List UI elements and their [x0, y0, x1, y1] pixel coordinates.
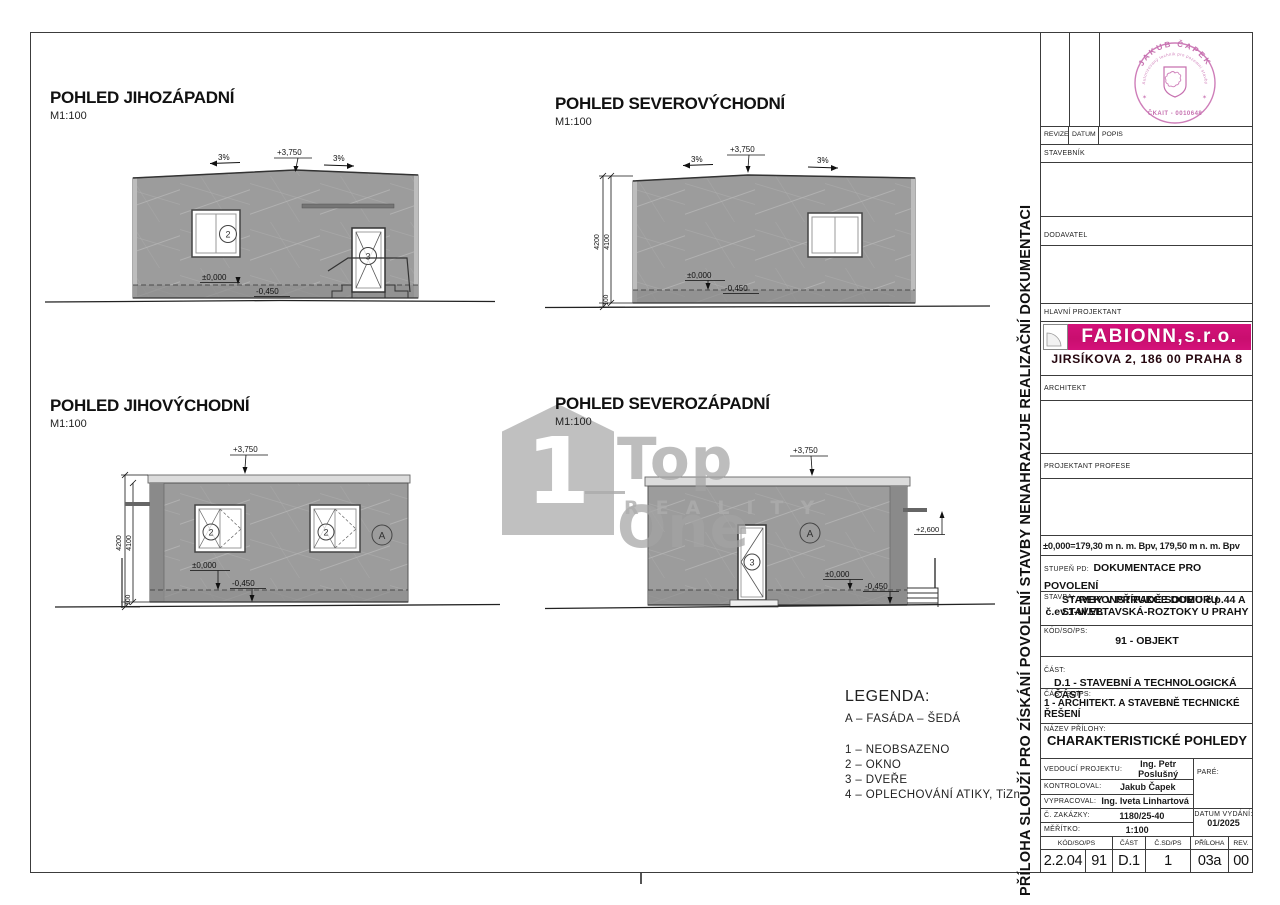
- legend-title: LEGENDA:: [845, 688, 1020, 706]
- svg-text:+3,750: +3,750: [233, 445, 258, 454]
- bottom-table-values: 2.2.04 91 D.1 1 03a 00: [1041, 850, 1253, 872]
- stavebnik-label: STAVEBNÍK: [1044, 150, 1085, 157]
- stamp-number: ČKAIT - 0010648: [1148, 110, 1203, 117]
- svg-text:3%: 3%: [817, 156, 829, 165]
- vedouci-row: VEDOUCÍ PROJEKTU: Ing. Petr Poslušný: [1041, 759, 1193, 780]
- fabionn-logo: FABIONN,s.r.o.: [1043, 324, 1251, 350]
- stamp-star-right: ✶: [1202, 94, 1207, 101]
- svg-text:3: 3: [365, 252, 370, 262]
- fabionn-logo-icon: [1043, 324, 1068, 350]
- stamp-shield: [1164, 67, 1186, 97]
- ground-line: [45, 301, 495, 303]
- stavba-label: STAVBA:: [1044, 594, 1075, 601]
- svg-text:A: A: [379, 531, 386, 542]
- stavebnik-box: [1041, 163, 1253, 217]
- right-steps: [907, 558, 938, 607]
- elevation-northeast: 4200 4100 100 +3,750 3% 3% ±0,000 -0,450: [545, 130, 1000, 325]
- bt-v-kod: 2.2.04: [1041, 850, 1086, 872]
- projektant-profese-section: PROJEKTANT PROFESE: [1041, 454, 1253, 479]
- svg-text:A: A: [807, 529, 814, 540]
- roof-annotations: +3,750 3% 3%: [683, 145, 838, 173]
- stavba-line1: REKONSTRUKCE DOMU č.p.44 A: [1044, 594, 1250, 606]
- kod-so-ps-value: 91 - OBJEKT: [1044, 635, 1250, 647]
- fabionn-name: FABIONN,s.r.o.: [1081, 326, 1237, 348]
- zakazka-value: 1180/25-40: [1094, 811, 1190, 821]
- meritko-row: MĚŘÍTKO: 1:100: [1041, 823, 1193, 836]
- zakazka-label: Č. ZAKÁZKY:: [1044, 812, 1090, 819]
- cast-so-ps-label: ČÁST SO/PS:: [1044, 691, 1250, 698]
- svg-text:+3,750: +3,750: [277, 148, 302, 157]
- svg-text:±0,000: ±0,000: [825, 570, 850, 579]
- legend-item: 2 – OKNO: [845, 758, 1020, 773]
- view-scale-se: M1:100: [50, 418, 87, 430]
- cast-label: ČÁST:: [1044, 667, 1065, 674]
- fabionn-banner: FABIONN,s.r.o.: [1068, 324, 1251, 350]
- view-scale-nw: M1:100: [555, 416, 592, 428]
- revize-header: REVIZE: [1041, 127, 1069, 144]
- attic-flashing: [148, 475, 410, 483]
- bottom-table-header: KÓD/SO/PS ČÁST Č.SD/PS PŘÍLOHA REV.: [1041, 837, 1253, 850]
- view-title-sw: POHLED JIHOZÁPADNÍ: [50, 88, 234, 108]
- architekt-section: ARCHITEKT: [1041, 376, 1253, 401]
- popis-header: POPIS: [1099, 127, 1253, 144]
- bt-v-cast: D.1: [1113, 850, 1146, 872]
- bt-h-cast: ČÁST: [1113, 837, 1146, 849]
- svg-text:2: 2: [208, 528, 213, 538]
- dodavatel-section: DODAVATEL: [1041, 217, 1253, 246]
- legend-item-facade: A – FASÁDA – ŠEDÁ: [845, 712, 1020, 727]
- svg-text:4100: 4100: [126, 535, 133, 551]
- vedouci-label: VEDOUCÍ PROJEKTU:: [1044, 766, 1122, 773]
- pare-label: PARÉ:: [1197, 769, 1219, 776]
- elevation-southeast: 2 2 A 4200 4100 100: [40, 440, 540, 625]
- meritko-label: MĚŘÍTKO:: [1044, 826, 1080, 833]
- window: [808, 213, 862, 257]
- vypracoval-value: Ing. Iveta Linhartová: [1100, 796, 1190, 806]
- legend-item: 4 – OPLECHOVÁNÍ ATIKY, TiZn: [845, 788, 1020, 803]
- svg-text:+2,600: +2,600: [916, 525, 939, 534]
- authorization-stamp: JAKUB ČAPEK Autorizovaný technik pro poz…: [1128, 39, 1220, 127]
- view-title-nw: POHLED SEVEROZÁPADNÍ: [555, 394, 770, 414]
- vedouci-value: Ing. Petr Poslušný: [1126, 759, 1190, 779]
- bt-h-priloha: PŘÍLOHA: [1191, 837, 1229, 849]
- kontroloval-row: KONTROLOVAL: Jakub Čapek: [1041, 780, 1193, 795]
- bt-v-rev: 00: [1229, 850, 1253, 872]
- elevation-northwest: 3 A +3,750 +2,600 ±0,000 -0,450: [545, 440, 1000, 655]
- svg-text:4100: 4100: [604, 234, 611, 250]
- svg-text:-0,450: -0,450: [256, 287, 279, 296]
- view-title-ne: POHLED SEVEROVÝCHODNÍ: [555, 94, 785, 114]
- elevation-southwest: 2 3 ±0,000 -0,450 +3,750: [40, 130, 540, 320]
- bt-v-so: 91: [1086, 850, 1113, 872]
- stavba-section: STAVBA: REKONSTRUKCE DOMU č.p.44 A č.ev.…: [1041, 592, 1253, 626]
- kod-so-ps-section: KÓD/SO/PS: 91 - OBJEKT: [1041, 626, 1253, 657]
- dodavatel-box: [1041, 246, 1253, 304]
- stavba-line2: č.ev.1-ul.VLTAVSKÁ-ROZTOKY U PRAHY: [1044, 606, 1250, 618]
- fabionn-address: JIRSÍKOVA 2, 186 00 PRAHA 8: [1041, 352, 1253, 366]
- svg-text:+3,750: +3,750: [730, 145, 755, 154]
- svg-text:-0,450: -0,450: [865, 582, 888, 591]
- kod-so-ps-label: KÓD/SO/PS:: [1044, 628, 1250, 635]
- svg-text:-0,450: -0,450: [725, 284, 748, 293]
- bt-h-rev: REV.: [1229, 837, 1253, 849]
- window-right: 2: [310, 505, 360, 552]
- title-block: JAKUB ČAPEK Autorizovaný technik pro poz…: [1040, 32, 1253, 873]
- svg-text:100: 100: [603, 294, 610, 305]
- svg-text:2: 2: [323, 528, 328, 538]
- zakazka-block: Č. ZAKÁZKY: 1180/25-40 MĚŘÍTKO: 1:100 DA…: [1041, 809, 1253, 837]
- architekt-label: ARCHITEKT: [1044, 385, 1086, 392]
- svg-text:±0,000: ±0,000: [202, 273, 227, 282]
- dodavatel-label: DODAVATEL: [1044, 232, 1088, 239]
- roof-annotations: +3,750: [230, 445, 268, 474]
- company-logo-box: FABIONN,s.r.o. JIRSÍKOVA 2, 186 00 PRAHA…: [1041, 322, 1253, 376]
- hlavni-projektant-section: HLAVNÍ PROJEKTANT: [1041, 304, 1253, 322]
- legend: LEGENDA: A – FASÁDA – ŠEDÁ 1 – NEOBSAZEN…: [845, 688, 1020, 803]
- stupen-pd-section: STUPEŇ PD: DOKUMENTACE PRO POVOLENÍ STAV…: [1041, 556, 1253, 592]
- svg-text:-0,450: -0,450: [232, 579, 255, 588]
- svg-text:3%: 3%: [218, 153, 230, 162]
- zakazka-row: Č. ZAKÁZKY: 1180/25-40: [1041, 809, 1193, 823]
- bt-v-priloha: 03a: [1191, 850, 1229, 872]
- stamp-star-left: ✶: [1142, 94, 1147, 101]
- hlavni-projektant-label: HLAVNÍ PROJEKTANT: [1044, 309, 1122, 316]
- legend-item: 1 – NEOBSAZENO: [845, 743, 1020, 758]
- roof-annotations: +3,750 3% 3%: [210, 148, 354, 172]
- datum-vydani-value: 01/2025: [1194, 818, 1253, 828]
- kontroloval-value: Jakub Čapek: [1106, 782, 1190, 792]
- projektant-profese-box: [1041, 479, 1253, 536]
- people-block: VEDOUCÍ PROJEKTU: Ing. Petr Poslušný KON…: [1041, 759, 1253, 809]
- datum-vydani-cell: DATUM VYDÁNÍ: 01/2025: [1193, 809, 1253, 836]
- svg-text:2: 2: [225, 230, 230, 240]
- projektant-profese-label: PROJEKTANT PROFESE: [1044, 463, 1130, 470]
- vypracoval-label: VYPRACOVAL:: [1044, 798, 1096, 805]
- vypracoval-row: VYPRACOVAL: Ing. Iveta Linhartová: [1041, 795, 1193, 809]
- drawing-sheet: POHLED JIHOZÁPADNÍ M1:100 POHLED SEVEROV…: [0, 0, 1280, 905]
- cast-so-ps-value: 1 - ARCHITEKT. A STAVEBNĚ TECHNICKÉ ŘEŠE…: [1044, 698, 1250, 720]
- dimension-lines: 4200 4100 100: [116, 472, 150, 610]
- attic-flashing-strip: [302, 204, 394, 208]
- svg-text:±0,000: ±0,000: [687, 271, 712, 280]
- stupen-pd-label: STUPEŇ PD:: [1044, 566, 1089, 573]
- ground-line: [545, 306, 990, 308]
- elevation-datum-note: ±0,000=179,30 m n. m. Bpv, 179,50 m n. m…: [1043, 541, 1240, 551]
- dimension-lines: 4200 4100 100: [594, 173, 633, 310]
- revision-area: JAKUB ČAPEK Autorizovaný technik pro poz…: [1041, 32, 1253, 127]
- pare-cell: PARÉ:: [1193, 759, 1253, 808]
- datum-vydani-label: DATUM VYDÁNÍ:: [1194, 809, 1253, 818]
- cast-section: ČÁST: D.1 - STAVEBNÍ A TECHNOLOGICKÁ ČÁS…: [1041, 657, 1253, 689]
- door: 3: [352, 228, 385, 292]
- side-disclaimer-note: PŘÍLOHA SLOUŽÍ PRO ZÍSKÁNÍ POVOLENÍ STAV…: [1018, 284, 1036, 896]
- architekt-box: [1041, 401, 1253, 454]
- svg-text:100: 100: [125, 594, 132, 605]
- kontroloval-label: KONTROLOVAL:: [1044, 783, 1102, 790]
- nazev-prilohy-section: NÁZEV PŘÍLOHY: CHARAKTERISTICKÉ POHLEDY: [1041, 724, 1253, 759]
- view-title-se: POHLED JIHOVÝCHODNÍ: [50, 396, 249, 416]
- revision-headers: REVIZE DATUM POPIS: [1041, 127, 1253, 145]
- roof-annotations: +3,750: [790, 446, 828, 476]
- attic-flashing: [645, 477, 910, 486]
- stavebnik-section: STAVEBNÍK: [1041, 145, 1253, 163]
- legend-item: 3 – DVEŘE: [845, 773, 1020, 788]
- svg-text:4200: 4200: [594, 234, 601, 250]
- view-scale-ne: M1:100: [555, 116, 592, 128]
- svg-text:3%: 3%: [691, 155, 703, 164]
- svg-text:+3,750: +3,750: [793, 446, 818, 455]
- facade-wall: [148, 475, 410, 602]
- svg-text:3: 3: [749, 558, 754, 568]
- side-elements: [122, 502, 150, 608]
- svg-text:3%: 3%: [333, 154, 345, 163]
- svg-text:4200: 4200: [116, 535, 123, 551]
- elevation-datum-row: ±0,000=179,30 m n. m. Bpv, 179,50 m n. m…: [1041, 536, 1253, 556]
- bt-v-csd: 1: [1146, 850, 1191, 872]
- window-left: 2: [195, 505, 245, 552]
- bt-h-csd: Č.SD/PS: [1146, 837, 1191, 849]
- view-scale-sw: M1:100: [50, 110, 87, 122]
- datum-header: DATUM: [1069, 127, 1099, 144]
- window: 2: [192, 210, 240, 257]
- registration-tick: [640, 873, 642, 884]
- nazev-prilohy-value: CHARAKTERISTICKÉ POHLEDY: [1044, 733, 1250, 748]
- cast-so-ps-section: ČÁST SO/PS: 1 - ARCHITEKT. A STAVEBNĚ TE…: [1041, 689, 1253, 724]
- facade-wall: [633, 175, 915, 303]
- meritko-value: 1:100: [1084, 825, 1190, 835]
- bt-h-kod: KÓD/SO/PS: [1041, 837, 1113, 849]
- nazev-prilohy-label: NÁZEV PŘÍLOHY:: [1044, 726, 1250, 733]
- ledge-annotation: +2,600: [903, 508, 945, 535]
- svg-text:±0,000: ±0,000: [192, 561, 217, 570]
